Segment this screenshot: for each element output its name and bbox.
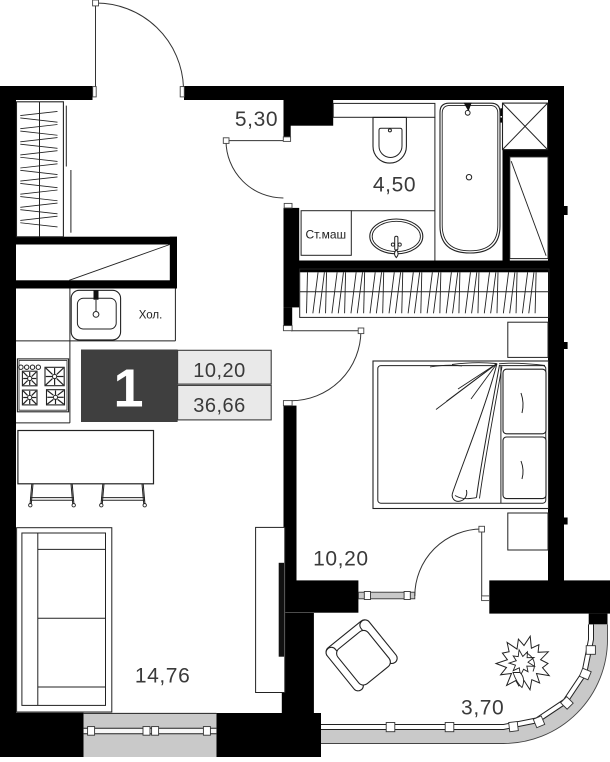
svg-text:10,20: 10,20: [313, 548, 369, 571]
svg-text:36,66: 36,66: [193, 395, 246, 417]
svg-text:14,76: 14,76: [135, 665, 191, 688]
svg-text:3,70: 3,70: [461, 697, 504, 720]
svg-text:10,20: 10,20: [193, 360, 246, 382]
svg-text:5,30: 5,30: [235, 108, 278, 131]
svg-text:Хол.: Хол.: [139, 310, 163, 322]
svg-text:Ст.маш: Ст.маш: [305, 228, 346, 242]
svg-text:4,50: 4,50: [373, 174, 416, 197]
svg-text:1: 1: [113, 359, 143, 419]
